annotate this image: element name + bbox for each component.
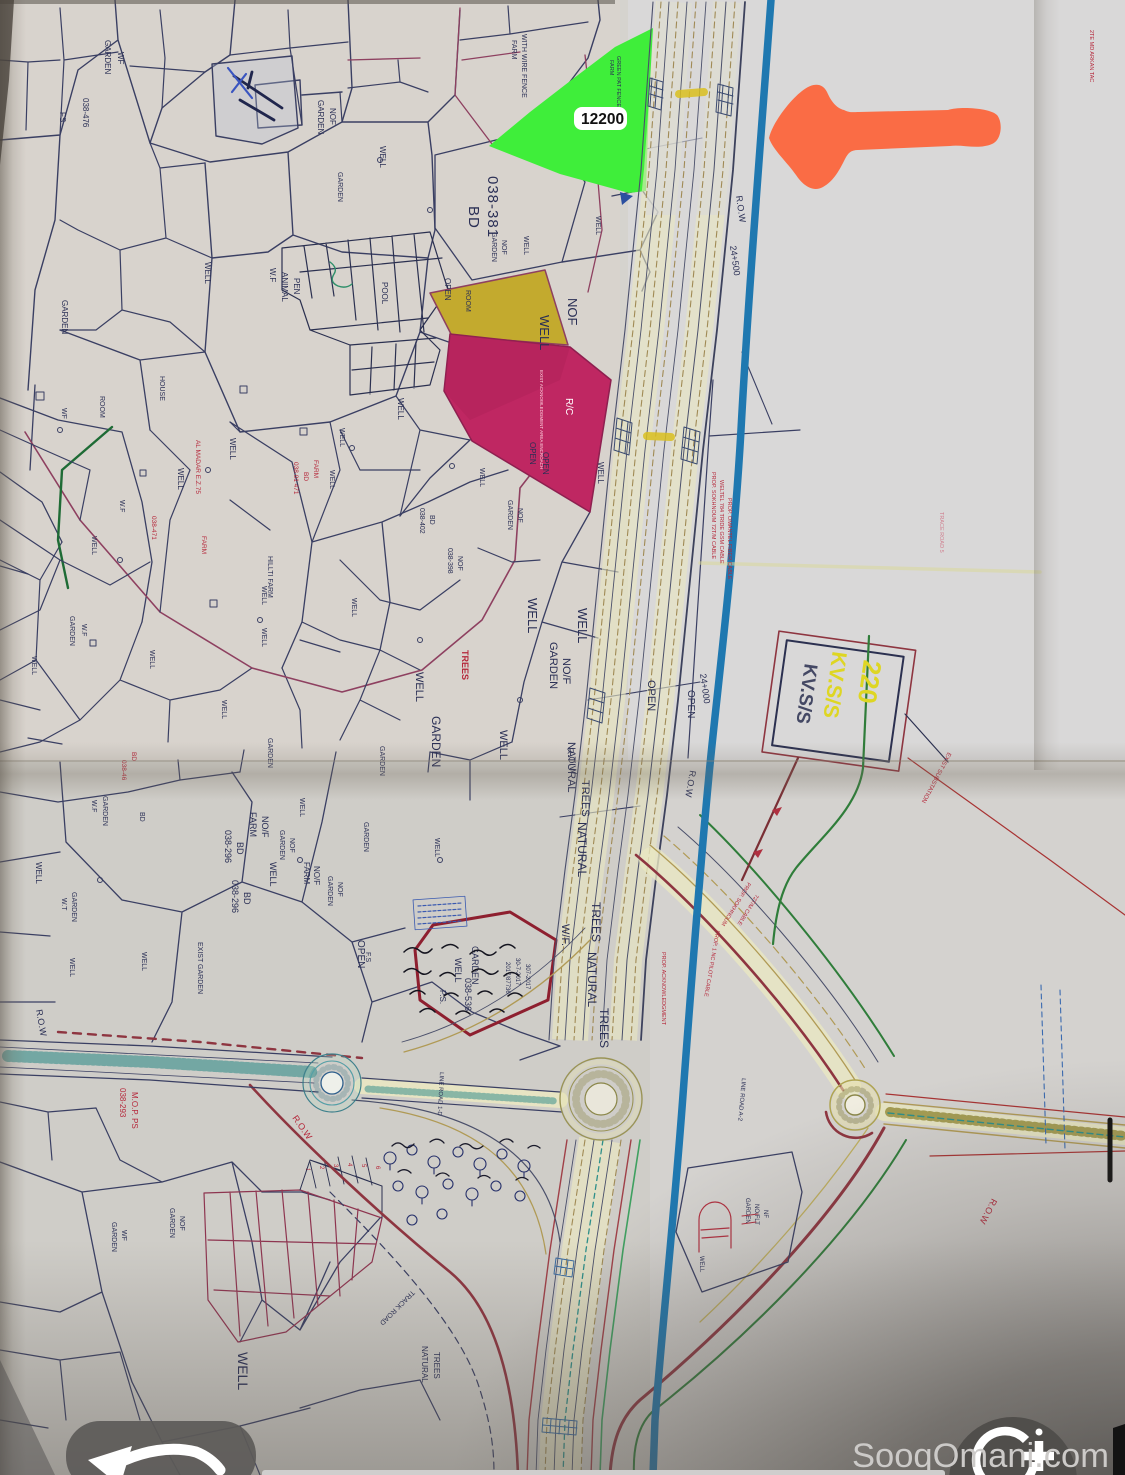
svg-text:ROOM: ROOM <box>98 396 105 418</box>
svg-text:GARDEN: GARDEN <box>68 616 75 646</box>
svg-text:F.S: F.S <box>364 952 371 962</box>
svg-text:FARM: FARM <box>510 40 517 60</box>
svg-text:NO/F: NO/F <box>560 658 572 685</box>
svg-text:BD: BD <box>428 515 435 525</box>
svg-text:038-476: 038-476 <box>81 98 90 128</box>
svg-text:038 01 471: 038 01 471 <box>292 462 299 495</box>
svg-text:WF: WF <box>120 1230 127 1241</box>
svg-text:TREES: TREES <box>589 902 603 942</box>
svg-text:WF: WF <box>60 408 67 419</box>
svg-text:GARDEN: GARDEN <box>506 500 513 530</box>
svg-text:OPEN: OPEN <box>541 452 550 475</box>
svg-text:2017/87736: 2017/87736 <box>504 962 510 994</box>
svg-text:GARDEN: GARDEN <box>326 876 333 906</box>
svg-text:ANIMAL: ANIMAL <box>280 272 289 302</box>
svg-text:NOF: NOF <box>336 882 343 897</box>
svg-text:HOUSE: HOUSE <box>158 376 165 401</box>
svg-text:TREES: TREES <box>460 650 470 680</box>
svg-text:WELL: WELL <box>378 146 387 168</box>
svg-text:BD: BD <box>138 812 145 822</box>
svg-text:OPEN: OPEN <box>443 278 452 301</box>
svg-text:GARDEN: GARDEN <box>101 796 108 826</box>
svg-text:GARDEN: GARDEN <box>547 642 559 689</box>
svg-text:GARDEN: GARDEN <box>278 830 285 860</box>
svg-text:WELL: WELL <box>594 216 601 235</box>
svg-text:NOF: NOF <box>565 298 580 326</box>
svg-text:NO/F: NO/F <box>312 866 321 885</box>
svg-text:GARDEN: GARDEN <box>103 40 112 74</box>
svg-text:NOF: NOF <box>456 556 463 571</box>
svg-text:FARM: FARM <box>312 460 319 478</box>
svg-text:038-293: 038-293 <box>118 1088 127 1118</box>
svg-text:WELL: WELL <box>350 598 357 617</box>
svg-text:WELL: WELL <box>140 952 147 971</box>
svg-text:WELL: WELL <box>453 958 463 983</box>
svg-text:BD: BD <box>235 842 245 855</box>
svg-text:GARDEN: GARDEN <box>362 822 369 852</box>
svg-text:R/C: R/C <box>563 398 574 415</box>
svg-text:GARDEN: GARDEN <box>60 300 69 334</box>
svg-text:WELL: WELL <box>525 598 540 633</box>
svg-text:W/F.: W/F. <box>559 924 571 946</box>
svg-text:WELL: WELL <box>413 672 425 702</box>
svg-text:GARDEN: GARDEN <box>70 892 77 922</box>
svg-text:OPEN: OPEN <box>685 690 696 718</box>
svg-text:038-471: 038-471 <box>150 516 157 540</box>
svg-text:OPEN: OPEN <box>528 442 537 465</box>
svg-text:TRACE ROAD 5: TRACE ROAD 5 <box>938 512 944 553</box>
svg-text:GREEN PAT FENCE: GREEN PAT FENCE <box>615 56 621 107</box>
svg-text:PROP. SOKHNOUM 72T/M CABLE: PROP. SOKHNOUM 72T/M CABLE <box>710 472 716 559</box>
svg-text:NOF: NOF <box>178 1216 185 1231</box>
svg-text:30-7-2017: 30-7-2017 <box>514 958 520 986</box>
svg-text:WELL: WELL <box>328 470 335 489</box>
svg-text:OPEN: OPEN <box>645 680 657 711</box>
svg-text:W.T: W.T <box>60 898 67 911</box>
svg-text:FARM: FARM <box>248 812 258 837</box>
svg-text:WELL: WELL <box>268 862 278 887</box>
svg-text:NATURAL: NATURAL <box>575 822 589 877</box>
svg-text:WELL: WELL <box>220 700 227 719</box>
svg-text:WELL: WELL <box>575 608 590 643</box>
svg-text:038-398: 038-398 <box>446 548 453 574</box>
svg-text:038-402: 038-402 <box>418 508 425 534</box>
svg-text:AL MADAR E.Z.75: AL MADAR E.Z.75 <box>194 440 201 494</box>
svg-text:12200: 12200 <box>581 111 624 128</box>
svg-text:NOF: NOF <box>516 508 523 523</box>
svg-text:WELL: WELL <box>148 650 155 669</box>
svg-text:EXIST GARDEN: EXIST GARDEN <box>196 942 203 994</box>
svg-text:WELL: WELL <box>537 315 552 350</box>
svg-text:GARDEN: GARDEN <box>316 100 325 134</box>
svg-text:NOF: NOF <box>500 240 507 255</box>
svg-text:NOF: NOF <box>288 838 295 853</box>
svg-text:NO/F: NO/F <box>260 816 270 838</box>
svg-text:038-296: 038-296 <box>230 880 240 913</box>
svg-text:W.F: W.F <box>80 624 87 636</box>
svg-text:BD: BD <box>242 892 252 905</box>
svg-text:FARM: FARM <box>302 862 311 885</box>
svg-text:PROP. OMANTEL FIBER CABLE: PROP. OMANTEL FIBER CABLE <box>726 498 732 580</box>
svg-text:W.F: W.F <box>268 268 277 282</box>
svg-text:ROOM: ROOM <box>464 290 471 312</box>
svg-text:WELL: WELL <box>203 262 212 284</box>
svg-text:WELL: WELL <box>522 236 529 255</box>
svg-text:SooqOmani.com: SooqOmani.com <box>852 1437 1109 1475</box>
svg-text:WELL: WELL <box>68 958 75 977</box>
svg-text:FS: FS <box>58 112 67 122</box>
svg-text:WELL: WELL <box>176 468 185 490</box>
svg-text:FARM: FARM <box>608 60 614 76</box>
svg-text:POOL: POOL <box>380 282 389 305</box>
svg-text:2TE MD ARKAN TAC: 2TE MD ARKAN TAC <box>1088 30 1094 82</box>
svg-text:NOF: NOF <box>328 108 337 125</box>
svg-text:WELL: WELL <box>260 628 267 647</box>
svg-text:WELL: WELL <box>228 438 237 460</box>
svg-text:WELL: WELL <box>433 838 440 857</box>
svg-text:WITH WIRE FENCE: WITH WIRE FENCE <box>520 34 527 98</box>
svg-text:WELL: WELL <box>338 428 345 447</box>
svg-text:GARDEN: GARDEN <box>336 172 343 202</box>
svg-text:BD: BD <box>465 206 482 229</box>
svg-text:038-381: 038-381 <box>484 176 501 238</box>
svg-text:BD: BD <box>302 472 309 481</box>
svg-text:GARDEN: GARDEN <box>168 1208 175 1238</box>
svg-text:WELL: WELL <box>34 862 43 884</box>
svg-text:WELTEL 784 TRIDE GSM CABLE: WELTEL 784 TRIDE GSM CABLE <box>718 480 724 564</box>
svg-text:M.O.P. PS: M.O.P. PS <box>130 1092 139 1129</box>
svg-text:307-2017: 307-2017 <box>524 964 530 990</box>
svg-text:WELL: WELL <box>596 462 605 484</box>
svg-text:W.F: W.F <box>118 500 125 512</box>
svg-text:WELL: WELL <box>478 468 485 487</box>
svg-text:WELL: WELL <box>298 798 305 817</box>
svg-text:WF: WF <box>116 52 125 65</box>
svg-text:220: 220 <box>852 658 888 705</box>
svg-text:WELL: WELL <box>396 398 405 420</box>
svg-text:WELL: WELL <box>90 536 97 555</box>
svg-text:WELL: WELL <box>30 656 37 675</box>
svg-text:038-296: 038-296 <box>223 830 233 863</box>
svg-text:FARM: FARM <box>200 536 207 554</box>
svg-text:WELL: WELL <box>260 586 267 605</box>
svg-text:W.F: W.F <box>90 800 97 812</box>
svg-text:PEN: PEN <box>292 278 301 295</box>
